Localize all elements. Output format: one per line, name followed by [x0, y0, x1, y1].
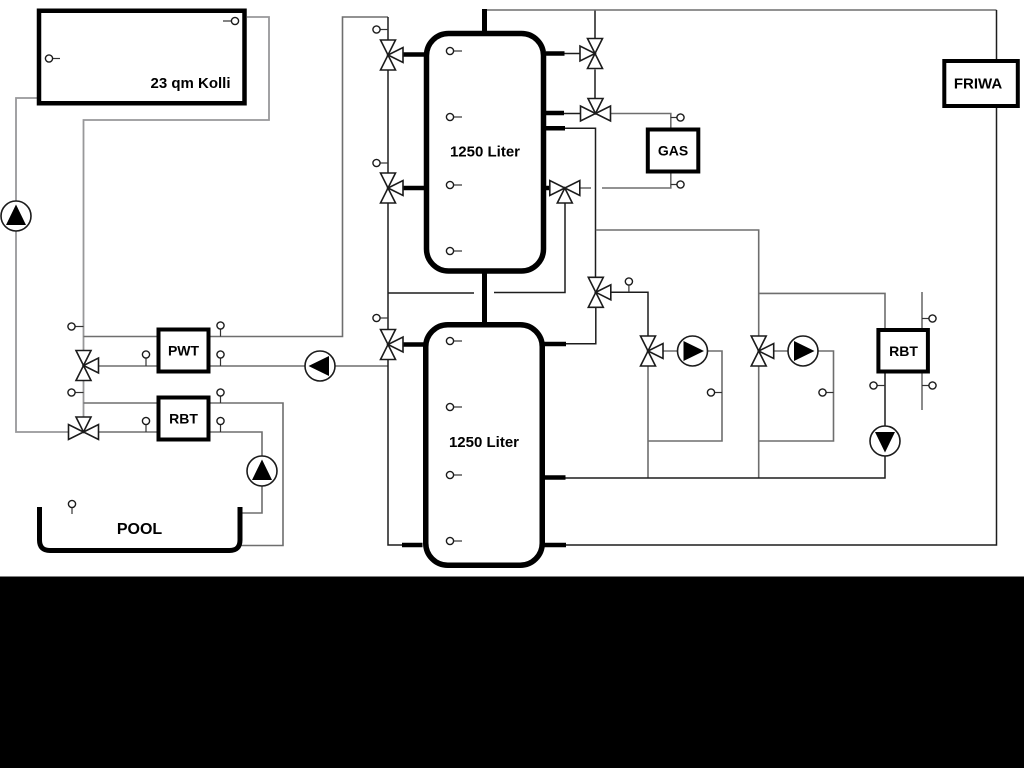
svg-text:RBT: RBT [169, 411, 198, 427]
svg-text:FRIWA: FRIWA [954, 76, 1002, 93]
svg-text:23 qm Kolli: 23 qm Kolli [150, 75, 230, 92]
svg-text:RBT: RBT [889, 343, 918, 359]
svg-text:GAS: GAS [658, 143, 688, 159]
svg-text:1250 Liter: 1250 Liter [449, 434, 519, 451]
svg-text:POOL: POOL [117, 521, 163, 538]
svg-text:PWT: PWT [168, 343, 200, 359]
svg-text:1250 Liter: 1250 Liter [450, 144, 520, 161]
